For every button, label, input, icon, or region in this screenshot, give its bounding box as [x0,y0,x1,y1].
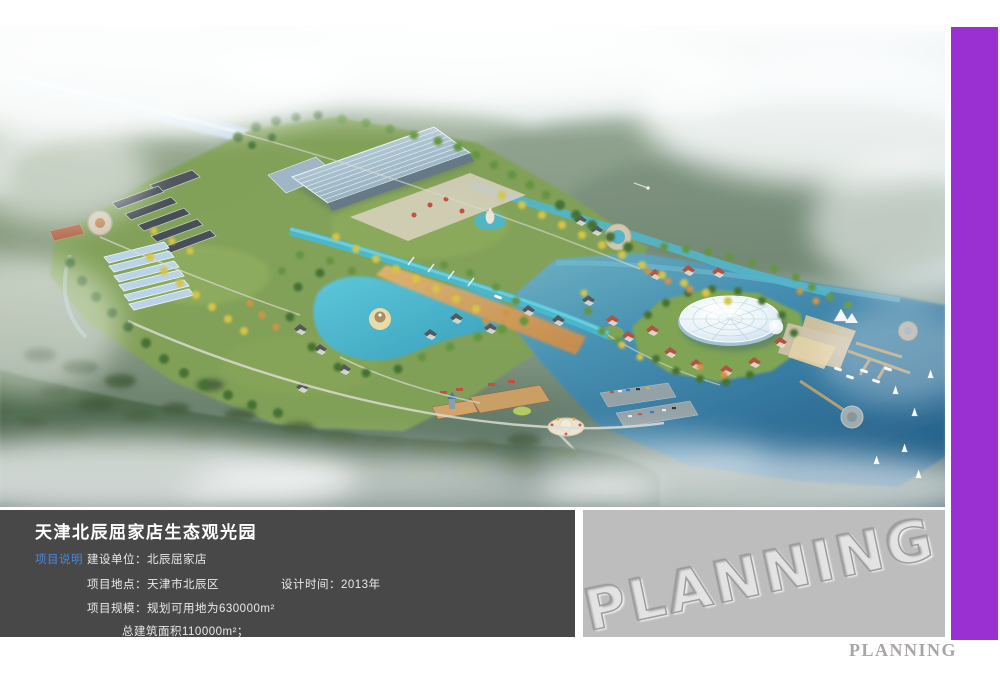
field-location: 项目地点：天津市北辰区 [87,576,219,592]
project-info-panel: 天津北辰屈家店生态观光园 项目说明 建设单位：北辰屈家店 项目地点：天津市北辰区… [0,510,575,637]
planning-watermark: PLANNING [583,510,941,637]
field-design-time: 设计时间：2013年 [281,576,381,592]
project-title: 天津北辰屈家店生态观光园 [35,518,257,543]
footer-brand: PLANNING [849,640,957,661]
field-construction-unit: 建设单位：北辰屈家店 [87,551,207,567]
accent-bar [951,27,998,640]
planning-board: 天津北辰屈家店生态观光园 项目说明 建设单位：北辰屈家店 项目地点：天津市北辰区… [0,0,1000,678]
aerial-rendering [0,25,945,507]
field-total-area: 总建筑面积110000m²； [122,623,249,639]
field-scale: 项目规模：规划可用地为630000m² [87,600,275,616]
watermark-panel: PLANNING [583,510,945,637]
aerial-rendering-svg [0,25,945,507]
fog-overlay [0,25,945,507]
section-tag: 项目说明 [35,551,83,567]
